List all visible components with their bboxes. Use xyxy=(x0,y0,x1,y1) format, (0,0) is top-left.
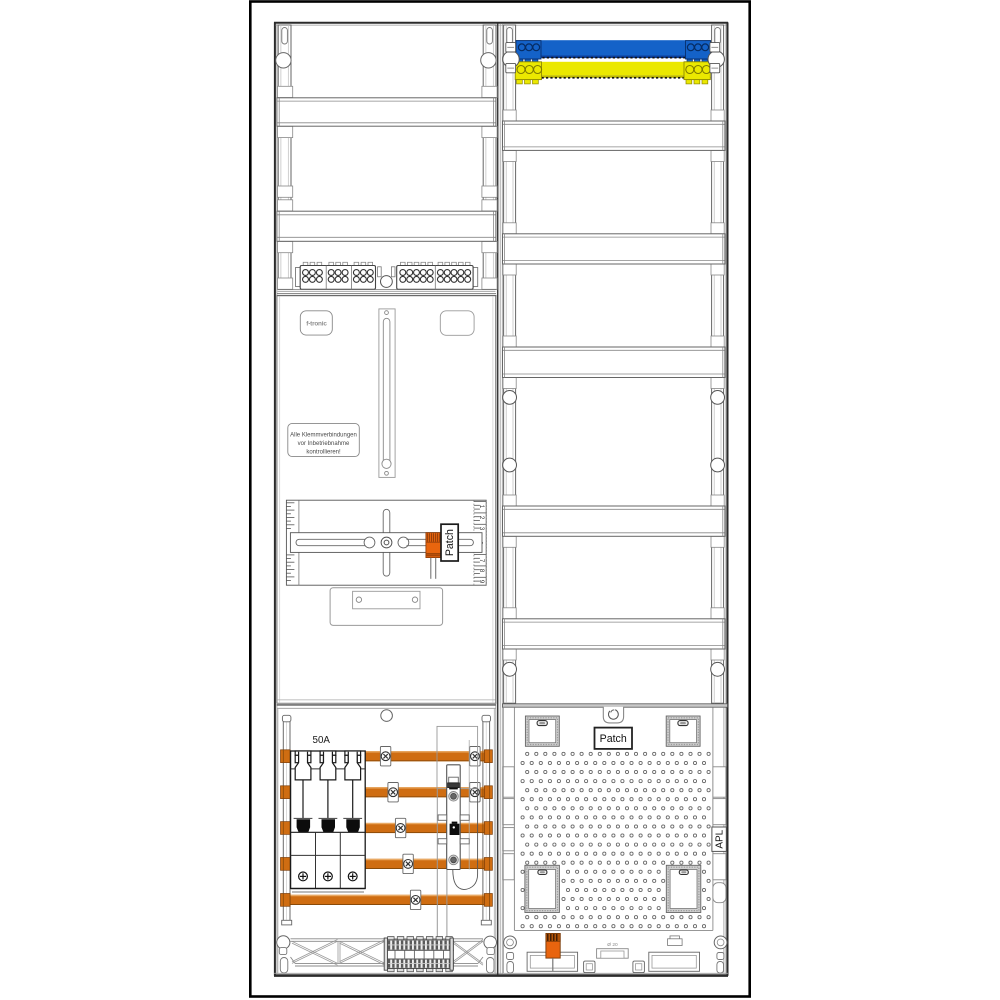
svg-text:50A: 50A xyxy=(313,735,331,746)
svg-text:APL: APL xyxy=(714,829,725,848)
svg-text:9: 9 xyxy=(478,580,485,584)
svg-text:3: 3 xyxy=(478,527,485,531)
svg-text:f-tronic: f-tronic xyxy=(306,321,327,328)
svg-text:Patch: Patch xyxy=(444,529,456,556)
svg-text:vor Inbetriebnahme: vor Inbetriebnahme xyxy=(298,441,350,447)
svg-text:7: 7 xyxy=(478,559,485,563)
svg-text:Patch: Patch xyxy=(600,733,627,745)
svg-text:Alle Klemmverbindungen: Alle Klemmverbindungen xyxy=(290,433,357,439)
svg-text:1: 1 xyxy=(478,505,485,509)
svg-text:2: 2 xyxy=(478,516,485,520)
svg-text:8: 8 xyxy=(478,569,485,573)
svg-text:kontrollieren!: kontrollieren! xyxy=(306,449,341,455)
svg-text:Ø 20: Ø 20 xyxy=(607,942,618,948)
